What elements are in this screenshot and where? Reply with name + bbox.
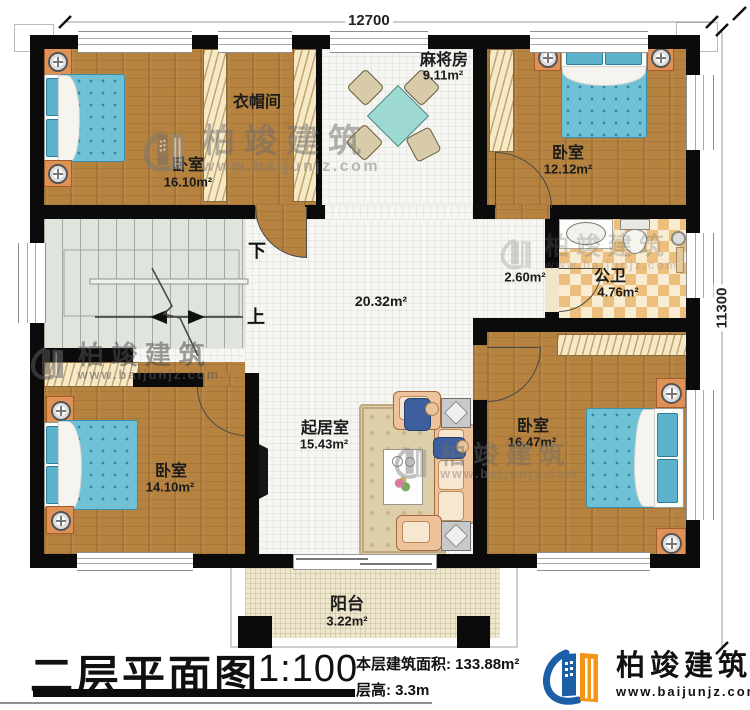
wall: [305, 205, 325, 219]
room-label-mahjong: 麻将房: [420, 46, 468, 70]
lamp-icon: [661, 383, 682, 404]
wardrobe-bedroom-bottom-right: [557, 334, 688, 356]
window: [218, 31, 292, 53]
door-threshold: [473, 345, 487, 400]
wall: [316, 49, 322, 205]
floor-drain-icon: [671, 231, 686, 246]
pillow: [657, 459, 678, 503]
window: [530, 31, 648, 53]
nightstand: [656, 378, 686, 408]
towel-rail: [676, 247, 684, 273]
floor-corridor: [487, 219, 545, 318]
area-label-bedroom-top-right: 12.12m²: [544, 162, 592, 177]
window: [686, 75, 714, 150]
sliding-door-balcony: [293, 554, 437, 570]
area-label-mahjong: 9.11m²: [423, 68, 463, 83]
floor-plan-page: 衣帽间 卧室 16.10m² 麻将房 9.11m² 卧室 12.12m² 20.…: [0, 0, 750, 710]
wardrobe-bedroom-top-right: [489, 49, 514, 152]
company-logo: 柏竣建筑 www.baijunjz.com: [538, 644, 750, 706]
sofa-cushion: [402, 521, 430, 543]
side-table-top: [444, 401, 469, 426]
title-rule: [0, 702, 432, 704]
floor-area-text: 本层建筑面积: 133.88m²: [356, 653, 519, 674]
wardrobe-cloakroom-right: [293, 49, 317, 202]
person-head: [456, 440, 469, 453]
lamp-icon: [48, 52, 68, 72]
sofa-cushion: [438, 491, 464, 521]
wall: [473, 400, 487, 554]
sliding-panel: [360, 563, 432, 565]
room-label-balcony: 阳台: [330, 590, 364, 615]
table-decor: [393, 476, 411, 494]
side-table: [441, 398, 471, 428]
room-label-bedroom-bottom-left: 卧室: [155, 457, 187, 481]
company-logo-icon: [538, 644, 612, 706]
floor-stairwell: [44, 219, 245, 348]
person-head: [425, 402, 439, 416]
area-label-bedroom-bottom-left: 14.10m²: [146, 480, 194, 495]
dimension-top: 12700: [345, 12, 393, 29]
room-label-bedroom-top-right: 卧室: [552, 139, 584, 163]
area-label-bedroom-bottom-right: 16.47m²: [508, 435, 556, 450]
wall: [30, 205, 255, 219]
dimension-right: 11300: [714, 285, 731, 332]
floor-height-text: 层高: 3.3m: [356, 679, 429, 700]
room-label-bedroom-bottom-right: 卧室: [517, 412, 549, 436]
wall: [473, 332, 487, 345]
wall: [30, 348, 133, 362]
area-label-balcony: 3.22m²: [326, 614, 367, 629]
side-table-top: [444, 524, 469, 549]
drawing-scale: 1:100: [258, 648, 358, 691]
wall: [545, 219, 559, 268]
room-label-cloakroom: 衣帽间: [233, 88, 281, 112]
wall: [473, 318, 686, 332]
sofa-cushion: [438, 460, 464, 490]
area-label-living: 15.43m²: [300, 437, 348, 452]
door-threshold: [545, 268, 559, 312]
table-item: [405, 457, 415, 467]
door-threshold: [203, 373, 245, 387]
wardrobe-bedroom-bottom-left: [44, 362, 139, 387]
nightstand: [44, 160, 72, 187]
stairs-down-label: 下: [248, 237, 266, 263]
company-logo-text: 柏竣建筑 www.baijunjz.com: [616, 652, 750, 699]
coffee-table: [383, 449, 423, 505]
pillow: [657, 413, 678, 457]
table-item: [392, 456, 403, 467]
wall: [245, 373, 259, 554]
floor-hall-strip: [325, 205, 473, 219]
lamp-icon: [51, 401, 71, 421]
area-label-corridor: 2.60m²: [504, 270, 545, 285]
nightstand: [44, 48, 72, 75]
bed-sheet-fold: [634, 409, 655, 507]
lamp-icon: [661, 533, 682, 554]
window: [537, 552, 650, 571]
room-label-living: 起居室: [301, 414, 349, 438]
room-label-bedroom-top-left: 卧室: [172, 151, 204, 175]
window: [330, 31, 428, 53]
room-label-bathroom: 公卫: [594, 262, 626, 286]
wall: [473, 205, 495, 219]
sliding-panel: [296, 558, 368, 560]
balcony-pillar: [457, 616, 490, 648]
nightstand: [46, 506, 74, 534]
lamp-icon: [48, 164, 68, 184]
window: [686, 390, 714, 520]
wall: [133, 373, 203, 387]
window: [77, 552, 193, 571]
wall: [473, 49, 487, 205]
side-table: [441, 521, 471, 551]
window: [18, 243, 46, 323]
sink-icon: [566, 222, 606, 245]
window: [686, 233, 714, 298]
area-label-bedroom-top-left: 16.10m²: [164, 175, 212, 190]
window: [78, 31, 192, 53]
lamp-icon: [51, 511, 71, 531]
area-label-bathroom: 4.76m²: [597, 285, 638, 300]
company-website: www.baijunjz.com: [616, 684, 750, 699]
wall: [550, 205, 686, 219]
lamp-icon: [651, 48, 671, 68]
area-label-hall: 20.32m²: [355, 293, 407, 309]
armchair-bottom: [396, 515, 442, 551]
company-name: 柏竣建筑: [616, 652, 750, 681]
stairs-up-label: 上: [247, 303, 265, 329]
